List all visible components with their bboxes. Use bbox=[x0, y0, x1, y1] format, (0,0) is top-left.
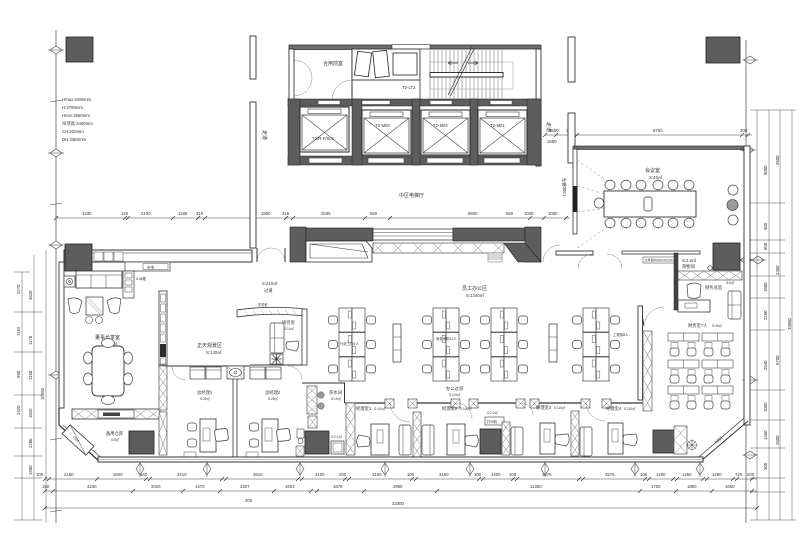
svg-text:S:2.2㎡: S:2.2㎡ bbox=[331, 434, 342, 439]
svg-text:1650: 1650 bbox=[547, 139, 557, 144]
svg-text:S:8㎡: S:8㎡ bbox=[111, 437, 120, 442]
svg-text:S:110㎡: S:110㎡ bbox=[449, 392, 461, 397]
svg-text:2150: 2150 bbox=[64, 472, 74, 477]
svg-text:S:9㎡: S:9㎡ bbox=[726, 280, 735, 285]
svg-text:2420: 2420 bbox=[16, 405, 21, 415]
svg-text:CH:220mm: CH:220mm bbox=[62, 129, 84, 134]
svg-text:1450: 1450 bbox=[763, 430, 768, 440]
svg-text:15060: 15060 bbox=[787, 317, 792, 330]
svg-text:DH:3380mm: DH:3380mm bbox=[62, 137, 87, 142]
svg-text:100: 100 bbox=[407, 472, 415, 477]
svg-text:S:2.5㎡: S:2.5㎡ bbox=[682, 257, 697, 263]
svg-text:S:110㎡: S:110㎡ bbox=[374, 406, 386, 411]
svg-text:员工办公区: 员工办公区 bbox=[462, 285, 487, 292]
svg-text:走道: 走道 bbox=[545, 122, 552, 132]
svg-text:2260: 2260 bbox=[763, 310, 768, 320]
svg-text:备用仓库: 备用仓库 bbox=[106, 430, 124, 437]
svg-text:1503: 1503 bbox=[285, 484, 295, 489]
svg-text:6600: 6600 bbox=[468, 211, 478, 216]
svg-text:1470: 1470 bbox=[195, 484, 205, 489]
svg-text:1160: 1160 bbox=[28, 370, 33, 380]
svg-text:行政工位6人: 行政工位6人 bbox=[340, 341, 359, 346]
svg-text:1280: 1280 bbox=[712, 472, 722, 477]
svg-text:总经理1: 总经理1 bbox=[197, 389, 213, 395]
svg-text:S:45㎡: S:45㎡ bbox=[649, 174, 663, 180]
svg-text:2207: 2207 bbox=[240, 484, 250, 489]
svg-text:T2-LT2: T2-LT2 bbox=[402, 85, 416, 90]
svg-text:315: 315 bbox=[282, 211, 290, 216]
svg-text:Hmin:3560mm: Hmin:3560mm bbox=[62, 113, 90, 118]
svg-text:合用前室: 合用前室 bbox=[323, 60, 343, 67]
svg-text:3410: 3410 bbox=[177, 472, 187, 477]
svg-text:1185: 1185 bbox=[178, 211, 188, 216]
svg-text:商务采购12人: 商务采购12人 bbox=[436, 336, 457, 341]
svg-text:100: 100 bbox=[509, 472, 517, 477]
svg-text:100: 100 bbox=[36, 472, 44, 477]
svg-text:1170: 1170 bbox=[28, 335, 33, 345]
svg-text:会议室: 会议室 bbox=[645, 167, 660, 174]
svg-text:5700: 5700 bbox=[775, 355, 780, 365]
svg-text:4500: 4500 bbox=[775, 155, 780, 165]
svg-text:1600: 1600 bbox=[763, 282, 768, 292]
svg-text:2350: 2350 bbox=[775, 265, 780, 275]
svg-text:走道: 走道 bbox=[261, 130, 268, 140]
svg-text:中区电梯厅: 中区电梯厅 bbox=[399, 192, 424, 199]
svg-text:900: 900 bbox=[763, 222, 768, 230]
svg-text:S:26㎡: S:26㎡ bbox=[200, 396, 211, 401]
svg-text:T2-M02: T2-M02 bbox=[433, 123, 448, 128]
svg-text:33300: 33300 bbox=[392, 501, 405, 506]
svg-text:S:26㎡: S:26㎡ bbox=[268, 396, 279, 401]
svg-text:2280: 2280 bbox=[28, 438, 33, 448]
svg-text:3150: 3150 bbox=[439, 472, 449, 477]
svg-text:水吧: 水吧 bbox=[147, 265, 154, 270]
svg-text:文件柜W600xH2200: 文件柜W600xH2200 bbox=[645, 258, 674, 263]
svg-text:1080: 1080 bbox=[548, 211, 558, 216]
svg-text:3275: 3275 bbox=[605, 472, 615, 477]
svg-text:L900幕布: L900幕布 bbox=[561, 177, 568, 196]
svg-text:S:210㎡: S:210㎡ bbox=[262, 280, 278, 286]
svg-text:S:110㎡: S:110㎡ bbox=[554, 405, 566, 410]
svg-text:2100: 2100 bbox=[315, 472, 325, 477]
svg-text:1875: 1875 bbox=[333, 484, 343, 489]
svg-text:150: 150 bbox=[42, 484, 50, 489]
svg-text:经理室3: 经理室3 bbox=[536, 404, 552, 410]
svg-text:3230: 3230 bbox=[87, 484, 97, 489]
svg-text:T2-M01: T2-M01 bbox=[490, 123, 505, 128]
svg-text:3620: 3620 bbox=[28, 290, 33, 300]
svg-text:财务室7人: 财务室7人 bbox=[688, 322, 708, 329]
svg-text:吊顶高:3400mm: 吊顶高:3400mm bbox=[62, 120, 93, 127]
svg-text:S:100㎡: S:100㎡ bbox=[460, 406, 472, 411]
svg-text:T2/R-F/S01: T2/R-F/S01 bbox=[312, 136, 335, 141]
svg-text:1200: 1200 bbox=[656, 472, 666, 477]
svg-text:8750: 8750 bbox=[653, 128, 663, 133]
svg-text:3610: 3610 bbox=[253, 472, 263, 477]
svg-text:S:44㎡: S:44㎡ bbox=[712, 323, 723, 328]
svg-text:茶水间: 茶水间 bbox=[329, 389, 342, 396]
svg-text:2600: 2600 bbox=[775, 435, 780, 445]
svg-text:3335: 3335 bbox=[321, 211, 331, 216]
svg-text:2640: 2640 bbox=[763, 360, 768, 370]
svg-text:650: 650 bbox=[506, 211, 514, 216]
svg-text:T2-M03: T2-M03 bbox=[375, 123, 390, 128]
svg-text:2100: 2100 bbox=[141, 211, 151, 216]
svg-text:正天观景区: 正天观景区 bbox=[197, 342, 222, 349]
svg-text:720: 720 bbox=[735, 472, 743, 477]
svg-text:200: 200 bbox=[245, 498, 253, 503]
svg-text:1110: 1110 bbox=[16, 326, 21, 336]
svg-text:5000: 5000 bbox=[763, 165, 768, 175]
svg-text:1700: 1700 bbox=[651, 484, 661, 489]
svg-text:Hmax:4280mm: Hmax:4280mm bbox=[62, 97, 92, 102]
svg-text:2270: 2270 bbox=[16, 284, 21, 294]
svg-text:玄关柜: 玄关柜 bbox=[258, 302, 268, 307]
svg-text:1960: 1960 bbox=[28, 465, 33, 475]
svg-text:H:3760mm: H:3760mm bbox=[62, 105, 83, 110]
svg-text:1035: 1035 bbox=[524, 211, 534, 216]
svg-text:650: 650 bbox=[763, 242, 768, 250]
svg-text:10550: 10550 bbox=[40, 387, 45, 400]
svg-text:打印机: 打印机 bbox=[487, 419, 498, 424]
svg-text:980: 980 bbox=[16, 370, 21, 378]
svg-text:S:15㎡: S:15㎡ bbox=[331, 396, 342, 401]
svg-text:300: 300 bbox=[763, 462, 768, 470]
svg-text:120: 120 bbox=[121, 211, 129, 216]
svg-text:11350: 11350 bbox=[530, 484, 542, 489]
svg-text:650: 650 bbox=[370, 211, 378, 216]
svg-text:财务总监: 财务总监 bbox=[705, 284, 723, 291]
svg-text:100: 100 bbox=[640, 472, 648, 477]
svg-text:315: 315 bbox=[196, 211, 204, 216]
svg-text:1250: 1250 bbox=[682, 472, 692, 477]
svg-text:S:2.0㎡: S:2.0㎡ bbox=[487, 410, 498, 415]
svg-text:200: 200 bbox=[339, 472, 347, 477]
svg-text:经理室4: 经理室4 bbox=[606, 405, 622, 411]
svg-text:S:110㎡: S:110㎡ bbox=[624, 406, 636, 411]
svg-text:2965: 2965 bbox=[393, 484, 403, 489]
svg-text:2600: 2600 bbox=[113, 472, 123, 477]
svg-text:300: 300 bbox=[740, 128, 748, 133]
svg-text:1550: 1550 bbox=[261, 211, 271, 216]
svg-text:S:1240㎡: S:1240㎡ bbox=[466, 292, 485, 298]
svg-text:办公过道: 办公过道 bbox=[446, 385, 464, 392]
svg-text:经理室1: 经理室1 bbox=[356, 405, 372, 411]
svg-text:3230: 3230 bbox=[82, 211, 92, 216]
svg-text:杂物间: 杂物间 bbox=[682, 263, 695, 270]
svg-text:1000: 1000 bbox=[763, 402, 768, 412]
svg-text:2020: 2020 bbox=[151, 484, 161, 489]
svg-text:S:140㎡: S:140㎡ bbox=[206, 349, 222, 355]
svg-text:经理室2: 经理室2 bbox=[442, 405, 458, 411]
svg-text:总经理2: 总经理2 bbox=[265, 389, 281, 395]
svg-text:过道: 过道 bbox=[264, 287, 273, 294]
svg-text:1650: 1650 bbox=[725, 484, 735, 489]
svg-text:200: 200 bbox=[747, 472, 755, 477]
svg-text:100: 100 bbox=[474, 472, 482, 477]
svg-text:1850: 1850 bbox=[687, 484, 697, 489]
svg-text:工程部8人: 工程部8人 bbox=[613, 332, 629, 337]
svg-text:1820: 1820 bbox=[28, 408, 33, 418]
svg-text:5.冰箱: 5.冰箱 bbox=[136, 276, 146, 281]
svg-text:3150: 3150 bbox=[372, 472, 382, 477]
svg-text:1400: 1400 bbox=[491, 472, 501, 477]
svg-text:S:14㎡: S:14㎡ bbox=[284, 326, 295, 331]
